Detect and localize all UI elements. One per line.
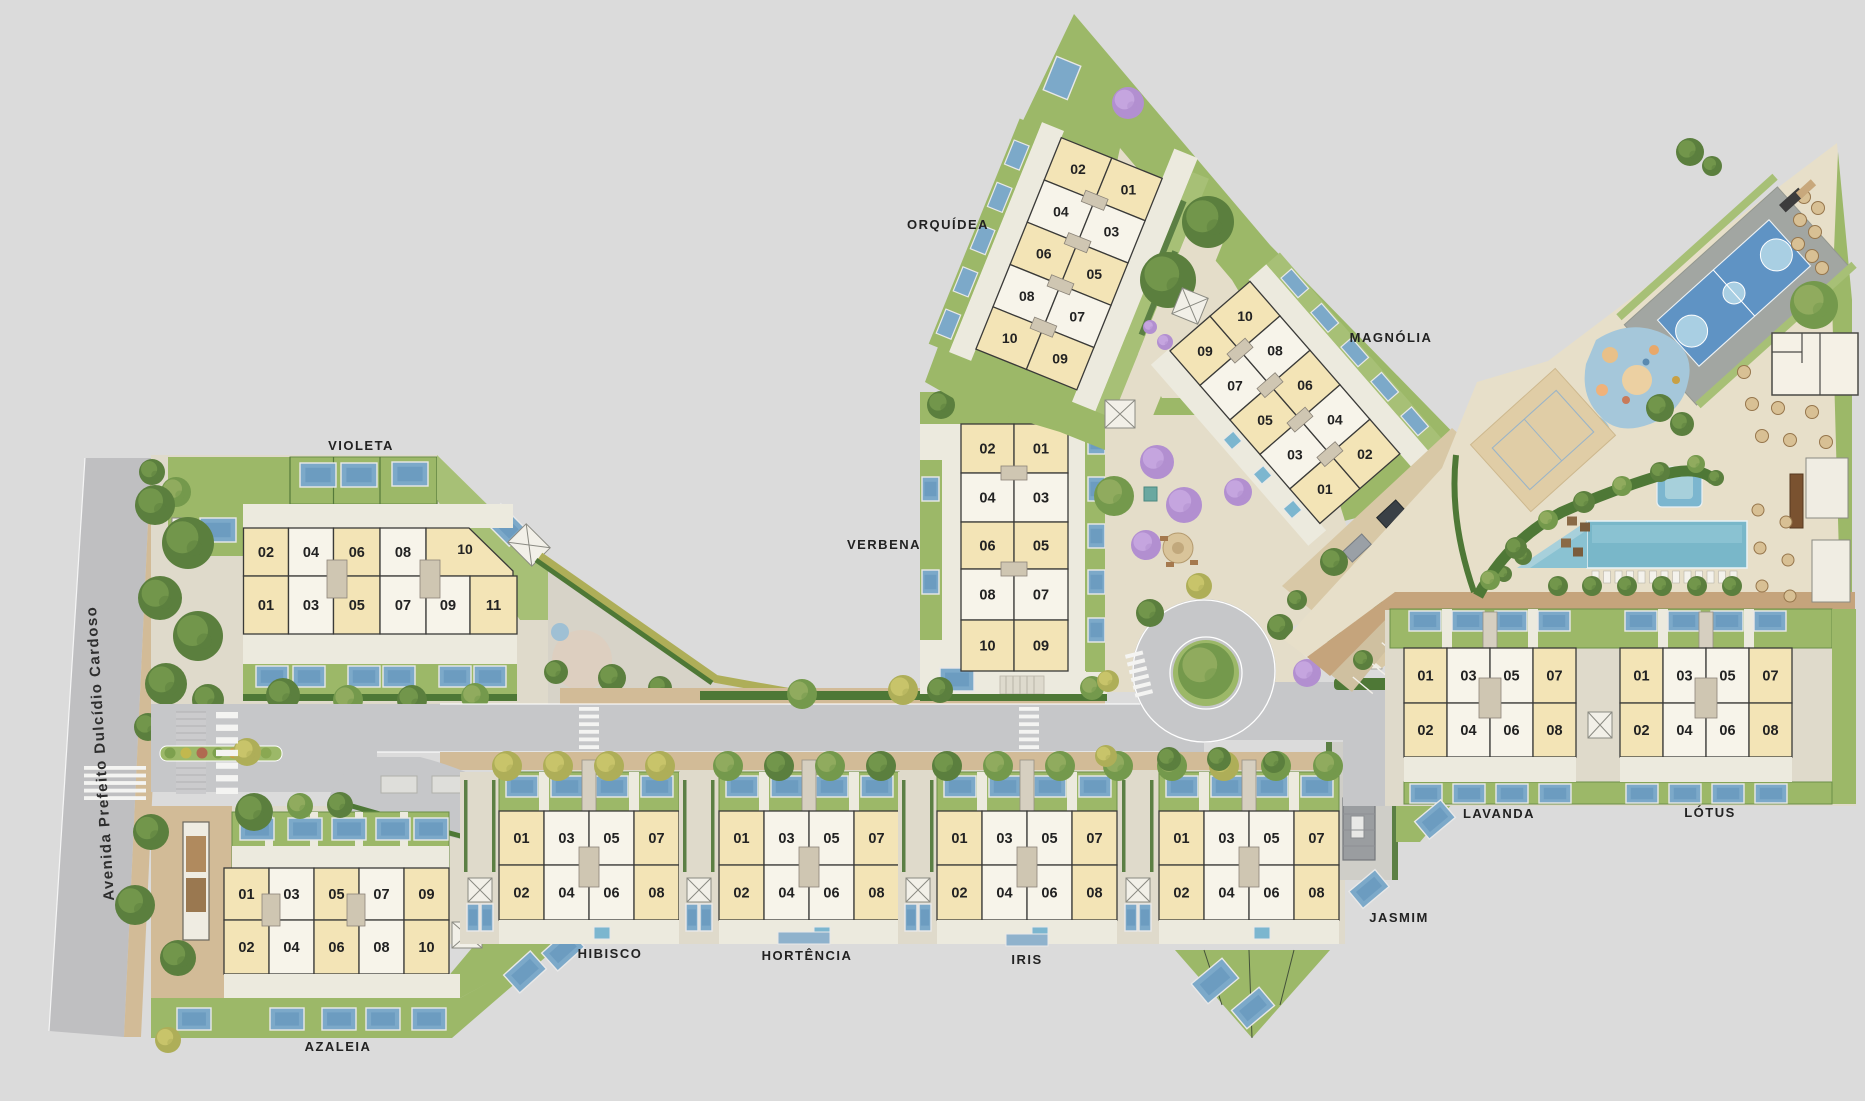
svg-text:03: 03 xyxy=(996,831,1012,847)
svg-text:10: 10 xyxy=(979,639,995,655)
svg-text:11: 11 xyxy=(486,598,501,614)
svg-text:07: 07 xyxy=(1227,377,1243,393)
svg-text:LÓTUS: LÓTUS xyxy=(1684,805,1736,820)
svg-text:01: 01 xyxy=(238,887,254,903)
svg-text:07: 07 xyxy=(868,831,884,847)
svg-text:06: 06 xyxy=(349,545,365,561)
svg-text:04: 04 xyxy=(1053,203,1069,219)
svg-text:03: 03 xyxy=(558,831,574,847)
svg-text:05: 05 xyxy=(1503,669,1519,685)
svg-text:04: 04 xyxy=(1676,723,1692,739)
svg-text:03: 03 xyxy=(778,831,794,847)
svg-text:04: 04 xyxy=(1218,886,1234,902)
svg-text:07: 07 xyxy=(373,887,389,903)
svg-text:01: 01 xyxy=(258,598,274,614)
svg-text:08: 08 xyxy=(395,545,411,561)
svg-text:LAVANDA: LAVANDA xyxy=(1463,806,1535,821)
svg-text:05: 05 xyxy=(349,598,365,614)
svg-text:06: 06 xyxy=(603,886,619,902)
svg-text:08: 08 xyxy=(648,886,664,902)
svg-text:03: 03 xyxy=(1218,831,1234,847)
svg-text:06: 06 xyxy=(1719,723,1735,739)
svg-text:08: 08 xyxy=(868,886,884,902)
svg-text:06: 06 xyxy=(1263,886,1279,902)
svg-text:04: 04 xyxy=(558,886,574,902)
svg-text:07: 07 xyxy=(1086,831,1102,847)
svg-text:04: 04 xyxy=(778,886,794,902)
svg-text:02: 02 xyxy=(1070,161,1086,177)
svg-text:MAGNÓLIA: MAGNÓLIA xyxy=(1350,330,1433,345)
svg-text:05: 05 xyxy=(1719,669,1735,685)
svg-text:05: 05 xyxy=(1263,831,1279,847)
svg-text:01: 01 xyxy=(1033,442,1049,458)
svg-text:03: 03 xyxy=(1104,224,1120,240)
svg-text:01: 01 xyxy=(1121,181,1137,197)
svg-text:08: 08 xyxy=(1546,723,1562,739)
svg-text:ORQUÍDEA: ORQUÍDEA xyxy=(907,217,989,232)
svg-text:04: 04 xyxy=(1327,412,1343,428)
svg-text:05: 05 xyxy=(603,831,619,847)
svg-text:01: 01 xyxy=(1633,669,1649,685)
svg-text:06: 06 xyxy=(1041,886,1057,902)
svg-text:05: 05 xyxy=(1087,266,1103,282)
svg-text:06: 06 xyxy=(328,940,344,956)
svg-text:09: 09 xyxy=(440,598,456,614)
svg-text:05: 05 xyxy=(823,831,839,847)
svg-text:06: 06 xyxy=(1036,246,1052,262)
svg-text:08: 08 xyxy=(1086,886,1102,902)
svg-text:VERBENA: VERBENA xyxy=(847,537,921,552)
svg-text:08: 08 xyxy=(1019,288,1035,304)
svg-text:04: 04 xyxy=(1460,723,1476,739)
svg-text:07: 07 xyxy=(1308,831,1324,847)
svg-text:01: 01 xyxy=(951,831,967,847)
svg-text:02: 02 xyxy=(979,442,995,458)
svg-text:05: 05 xyxy=(1033,539,1049,555)
svg-text:09: 09 xyxy=(1197,343,1213,359)
svg-text:01: 01 xyxy=(1417,669,1433,685)
svg-text:JASMIM: JASMIM xyxy=(1369,910,1429,925)
svg-text:08: 08 xyxy=(1762,723,1778,739)
svg-text:03: 03 xyxy=(1460,669,1476,685)
svg-text:03: 03 xyxy=(303,598,319,614)
svg-text:07: 07 xyxy=(1033,588,1049,604)
svg-text:04: 04 xyxy=(303,545,319,561)
svg-text:07: 07 xyxy=(1546,669,1562,685)
svg-text:02: 02 xyxy=(951,886,967,902)
svg-text:09: 09 xyxy=(1052,351,1068,367)
svg-text:02: 02 xyxy=(513,886,529,902)
svg-text:10: 10 xyxy=(418,940,434,956)
svg-text:01: 01 xyxy=(733,831,749,847)
svg-text:08: 08 xyxy=(373,940,389,956)
svg-text:01: 01 xyxy=(1317,481,1333,497)
svg-text:02: 02 xyxy=(733,886,749,902)
svg-text:10: 10 xyxy=(1237,308,1253,324)
svg-text:08: 08 xyxy=(1267,343,1283,359)
svg-text:05: 05 xyxy=(328,887,344,903)
svg-text:06: 06 xyxy=(1297,377,1313,393)
svg-text:10: 10 xyxy=(1002,330,1018,346)
svg-text:08: 08 xyxy=(979,588,995,604)
svg-text:02: 02 xyxy=(1357,446,1373,462)
svg-text:05: 05 xyxy=(1257,412,1273,428)
svg-text:03: 03 xyxy=(1287,446,1303,462)
svg-text:01: 01 xyxy=(513,831,529,847)
svg-text:IRIS: IRIS xyxy=(1011,952,1042,967)
svg-text:10: 10 xyxy=(457,541,473,557)
svg-text:HORTÊNCIA: HORTÊNCIA xyxy=(762,948,853,963)
svg-text:08: 08 xyxy=(1308,886,1324,902)
svg-text:04: 04 xyxy=(979,491,995,507)
svg-text:09: 09 xyxy=(418,887,434,903)
svg-text:03: 03 xyxy=(1033,491,1049,507)
svg-text:03: 03 xyxy=(283,887,299,903)
svg-text:07: 07 xyxy=(1762,669,1778,685)
svg-text:03: 03 xyxy=(1676,669,1692,685)
svg-text:06: 06 xyxy=(823,886,839,902)
svg-text:04: 04 xyxy=(283,940,299,956)
svg-text:07: 07 xyxy=(1069,308,1085,324)
svg-text:06: 06 xyxy=(1503,723,1519,739)
svg-text:HIBISCO: HIBISCO xyxy=(578,946,643,961)
svg-text:07: 07 xyxy=(648,831,664,847)
svg-text:02: 02 xyxy=(1173,886,1189,902)
svg-text:02: 02 xyxy=(1633,723,1649,739)
svg-text:AZALEIA: AZALEIA xyxy=(305,1039,372,1054)
svg-text:05: 05 xyxy=(1041,831,1057,847)
svg-text:VIOLETA: VIOLETA xyxy=(328,438,394,453)
svg-text:04: 04 xyxy=(996,886,1012,902)
svg-text:01: 01 xyxy=(1173,831,1189,847)
svg-text:07: 07 xyxy=(395,598,411,614)
svg-text:02: 02 xyxy=(1417,723,1433,739)
svg-text:02: 02 xyxy=(258,545,274,561)
svg-text:06: 06 xyxy=(979,539,995,555)
svg-text:09: 09 xyxy=(1033,639,1049,655)
svg-text:02: 02 xyxy=(238,940,254,956)
